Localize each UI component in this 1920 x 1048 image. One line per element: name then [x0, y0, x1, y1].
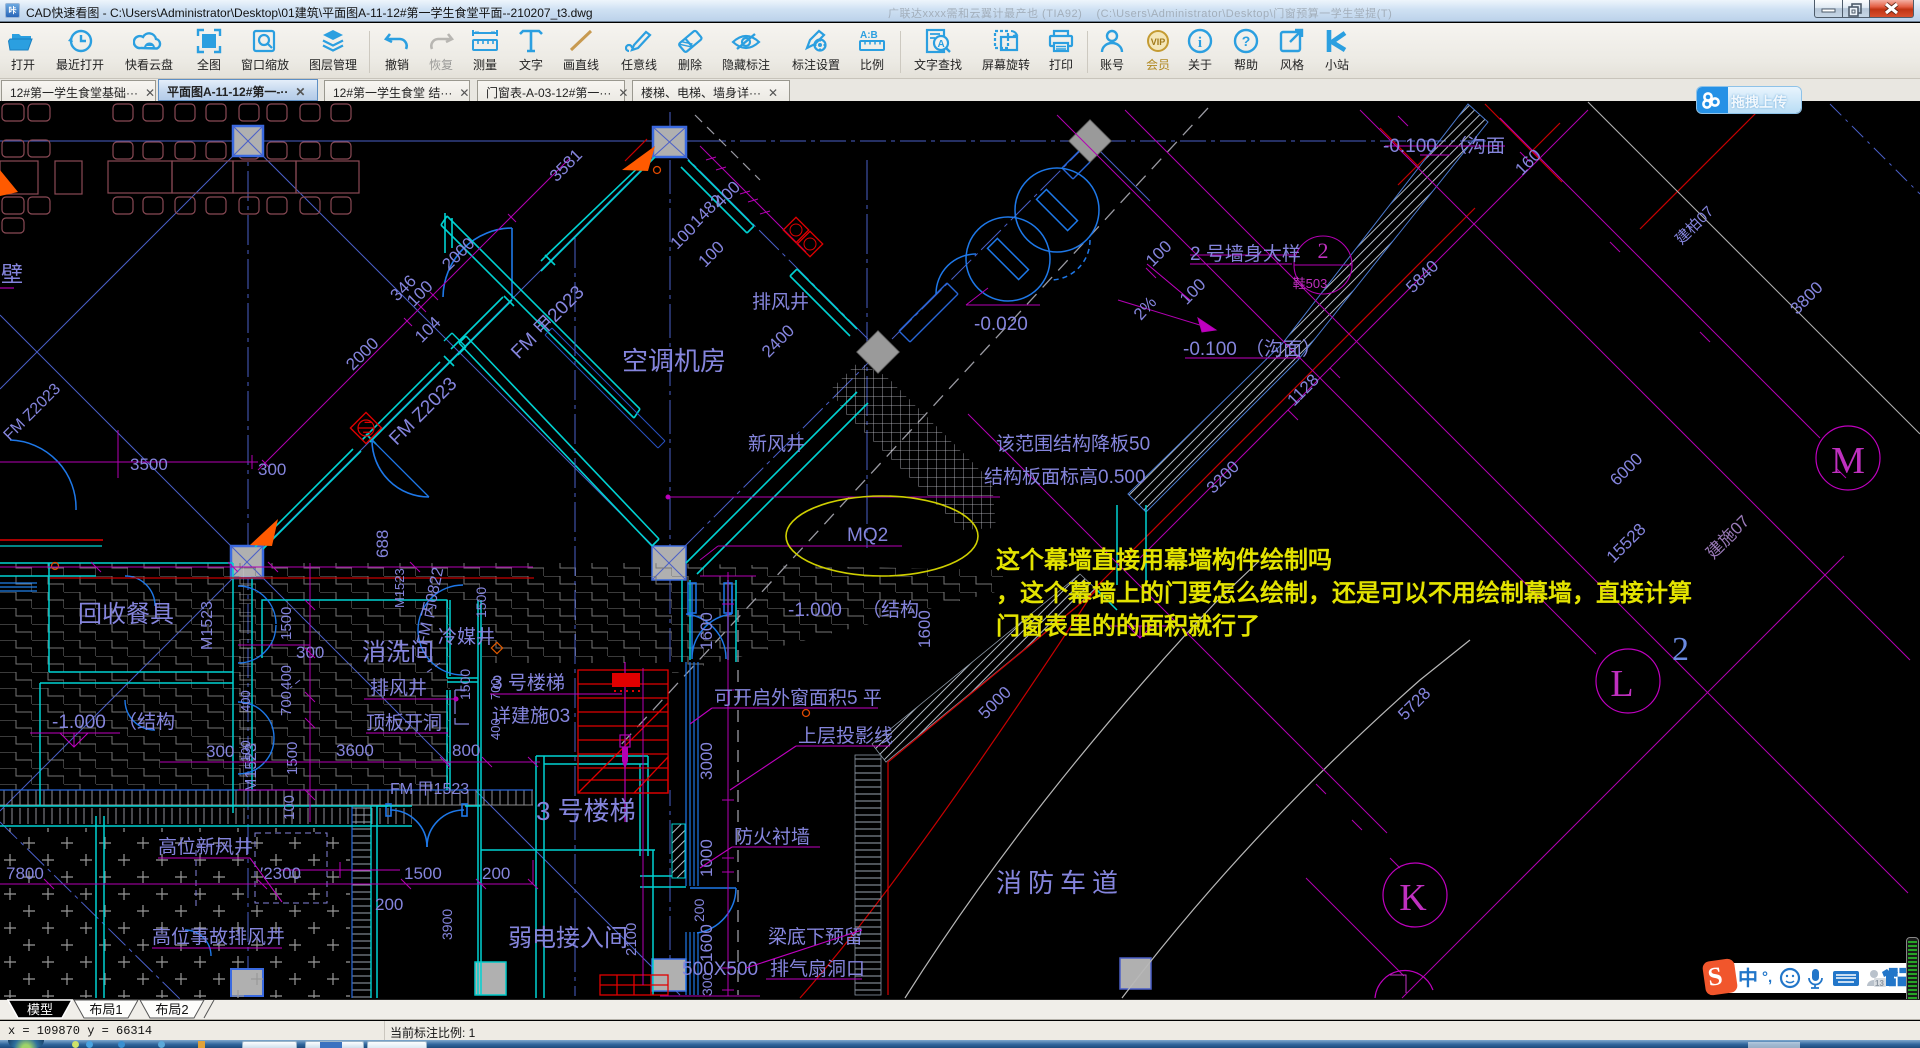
svg-text:13: 13 [1875, 979, 1884, 988]
svg-text:壁: 壁 [1, 262, 23, 287]
svg-text:鞋503: 鞋503 [1293, 276, 1328, 291]
svg-text:2 号墙身大样: 2 号墙身大样 [1190, 243, 1301, 265]
svg-text:结构板面标高0.500: 结构板面标高0.500 [984, 466, 1146, 488]
svg-text:°,: °, [1762, 969, 1772, 986]
svg-text:400: 400 [238, 690, 253, 712]
svg-text:2: 2 [1672, 631, 1689, 668]
svg-text:门窗表里的的面积就行了: 门窗表里的的面积就行了 [996, 612, 1260, 640]
svg-text:1500: 1500 [284, 742, 301, 775]
svg-text:可开启外窗面积5 平: 可开启外窗面积5 平 [714, 687, 882, 709]
svg-text:（沟面: （沟面 [1448, 135, 1505, 157]
svg-text:1500: 1500 [278, 607, 295, 640]
svg-text:200: 200 [375, 895, 403, 914]
svg-text:顶板开洞: 顶板开洞 [366, 712, 442, 734]
svg-text:-0.100: -0.100 [1383, 136, 1437, 157]
svg-text:空调机房: 空调机房 [622, 346, 726, 376]
svg-text:3000: 3000 [697, 742, 716, 780]
svg-text:M1523: M1523 [199, 601, 216, 650]
svg-text:新风井: 新风井 [748, 433, 805, 455]
svg-text:100: 100 [281, 795, 298, 820]
svg-text:排风井: 排风井 [370, 677, 427, 699]
svg-text:中: 中 [1738, 966, 1758, 990]
svg-text:VIP: VIP [1151, 37, 1166, 47]
svg-text:（结构: （结构 [862, 599, 919, 621]
svg-text:200: 200 [691, 898, 707, 922]
svg-text:300: 300 [699, 972, 715, 996]
svg-text:排风井: 排风井 [752, 291, 809, 313]
svg-text:1600: 1600 [697, 924, 716, 962]
svg-text:3900: 3900 [439, 909, 455, 940]
svg-text:高位事故排风井: 高位事故排风井 [152, 926, 285, 948]
svg-text:FM 甲1523: FM 甲1523 [390, 781, 469, 798]
svg-text:3500: 3500 [130, 455, 168, 474]
svg-text:?: ? [1242, 33, 1251, 49]
svg-text:回收餐具: 回收餐具 [78, 601, 174, 628]
svg-text:300: 300 [206, 742, 234, 761]
svg-text:高位新风井: 高位新风井 [158, 836, 253, 858]
svg-text:2: 2 [1318, 238, 1329, 263]
svg-text:这个幕墙直接用幕墙构件绘制吗: 这个幕墙直接用幕墙构件绘制吗 [996, 546, 1332, 574]
svg-text:详建施03: 详建施03 [492, 705, 570, 727]
svg-text:1500: 1500 [473, 587, 489, 618]
svg-text:A:B: A:B [860, 30, 878, 41]
svg-text:L: L [1610, 663, 1633, 705]
svg-text:弱电接入间: 弱电接入间 [508, 925, 628, 952]
svg-text:1600: 1600 [697, 612, 716, 650]
svg-text:防火衬墙: 防火衬墙 [734, 826, 810, 848]
svg-text:上层投影线: 上层投影线 [798, 725, 893, 747]
svg-text:K: K [1399, 877, 1427, 919]
svg-text:-0.100: -0.100 [1183, 339, 1237, 360]
svg-text:1600: 1600 [915, 610, 934, 648]
svg-text:M: M [1831, 440, 1865, 482]
svg-text:200: 200 [482, 864, 510, 883]
svg-text:M1523: M1523 [392, 568, 407, 608]
svg-text:-0.020: -0.020 [974, 314, 1028, 335]
svg-text:模型: 模型 [27, 1002, 53, 1017]
svg-text:400: 400 [278, 665, 295, 690]
svg-text:MQ2: MQ2 [847, 525, 888, 546]
svg-text:100: 100 [238, 740, 253, 762]
svg-text:-1.000: -1.000 [52, 712, 106, 733]
svg-text:（结构: （结构 [118, 711, 175, 733]
svg-text:1500: 1500 [457, 669, 473, 700]
svg-text:700: 700 [488, 678, 503, 700]
svg-text:688: 688 [373, 530, 392, 558]
svg-text:冷媒井: 冷媒井 [438, 626, 495, 648]
svg-text:（沟面）: （沟面） [1245, 338, 1321, 360]
svg-text:布局2: 布局2 [155, 1002, 188, 1017]
svg-text:7800: 7800 [6, 864, 44, 883]
svg-text:消防车道: 消防车道 [996, 868, 1124, 898]
svg-text:3 号楼梯: 3 号楼梯 [536, 796, 636, 826]
svg-text:2100: 2100 [623, 923, 640, 956]
svg-text:-1.000: -1.000 [788, 600, 842, 621]
svg-text:排气扇洞口: 排气扇洞口 [770, 958, 865, 980]
svg-text:i: i [1198, 35, 1202, 51]
svg-text:，这个幕墙上的门要怎么绘制，还是可以不用绘制幕墙，直接计算: ，这个幕墙上的门要怎么绘制，还是可以不用绘制幕墙，直接计算 [996, 579, 1692, 607]
svg-text:布局1: 布局1 [89, 1002, 122, 1017]
svg-text:800: 800 [452, 741, 480, 760]
svg-text:500X500: 500X500 [682, 959, 758, 980]
svg-text:700: 700 [278, 691, 295, 716]
svg-text:3600: 3600 [336, 741, 374, 760]
svg-text:400: 400 [488, 718, 503, 740]
svg-text:1500: 1500 [404, 864, 442, 883]
svg-text:300: 300 [258, 460, 286, 479]
svg-text:该范围结构降板50: 该范围结构降板50 [996, 433, 1150, 455]
svg-text:1000: 1000 [697, 839, 716, 877]
svg-text:A: A [938, 39, 945, 50]
